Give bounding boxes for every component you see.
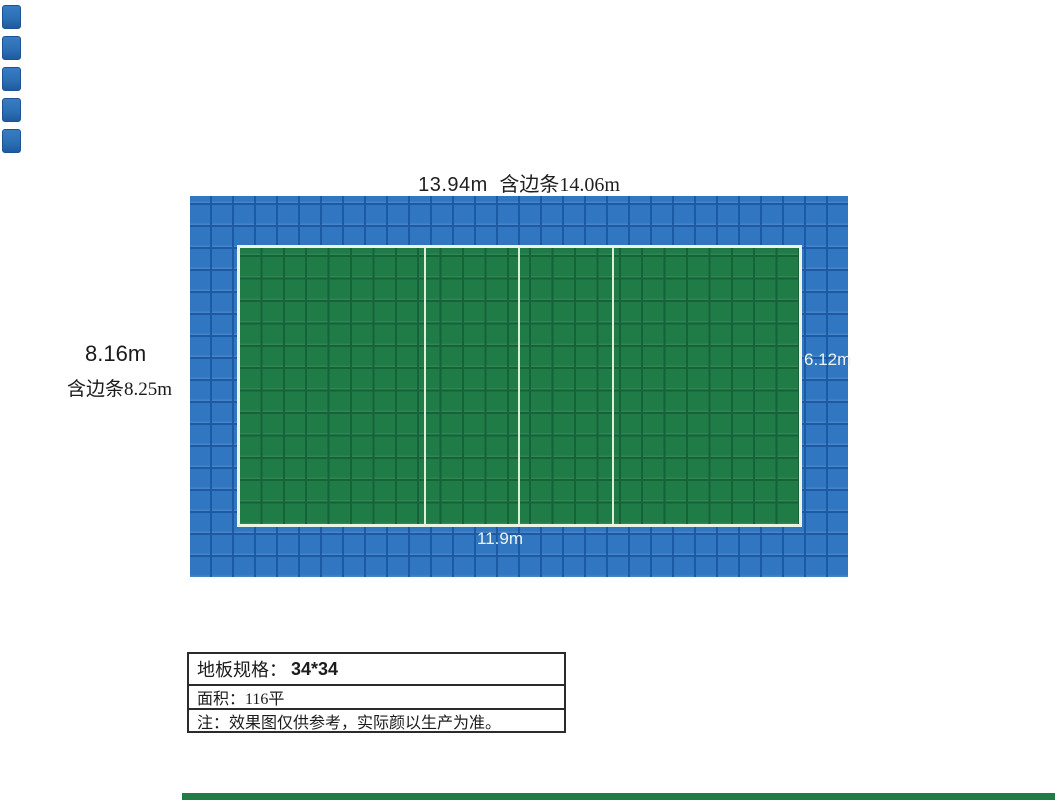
blue-tile-swatch-icon [2, 36, 21, 60]
blue-tile-swatch-icon [2, 129, 21, 153]
left-dimension-main: 8.16m [67, 341, 172, 367]
court-width-label: 11.9m [477, 529, 523, 549]
spec-note-label: 注： [197, 709, 229, 732]
spec-row-note: 注： 效果图仅供参考，实际颜以生产为准。 [189, 708, 564, 731]
attack-line-left [424, 248, 426, 524]
bottom-green-strip [182, 793, 1055, 800]
swatch-column [2, 5, 22, 160]
spec-area-value: 116平 [245, 685, 284, 708]
floor-plan-page: 13.94m 含边条14.06m 8.16m 含边条8.25m 6.12m 11… [0, 0, 1055, 800]
top-dimension-label: 13.94m 含边条14.06m [190, 168, 848, 197]
blue-tile-swatch-icon [2, 98, 21, 122]
spec-floor-size-label: 地板规格： [197, 656, 287, 682]
spec-table: 地板规格： 34*34 面积： 116平 注： 效果图仅供参考，实际颜以生产为准… [187, 652, 566, 733]
blue-tile-swatch-icon [2, 67, 21, 91]
blue-tile-swatch-icon [2, 5, 21, 29]
court-height-label: 6.12m [804, 350, 851, 370]
left-dimension-with-edge: 含边条8.25m [67, 374, 172, 401]
top-dimension-with-edge: 含边条14.06m [499, 174, 620, 196]
attack-line-right [612, 248, 614, 524]
court-area [237, 245, 802, 527]
spec-floor-size-value: 34*34 [291, 659, 338, 680]
center-line [518, 248, 520, 524]
spec-row-floor-size: 地板规格： 34*34 [189, 654, 564, 684]
top-dimension-main: 13.94m [418, 174, 488, 196]
spec-area-label: 面积： [197, 685, 245, 708]
spec-row-area: 面积： 116平 [189, 684, 564, 708]
spec-note-value: 效果图仅供参考，实际颜以生产为准。 [229, 709, 501, 732]
left-dimension-label: 8.16m 含边条8.25m [67, 341, 172, 401]
